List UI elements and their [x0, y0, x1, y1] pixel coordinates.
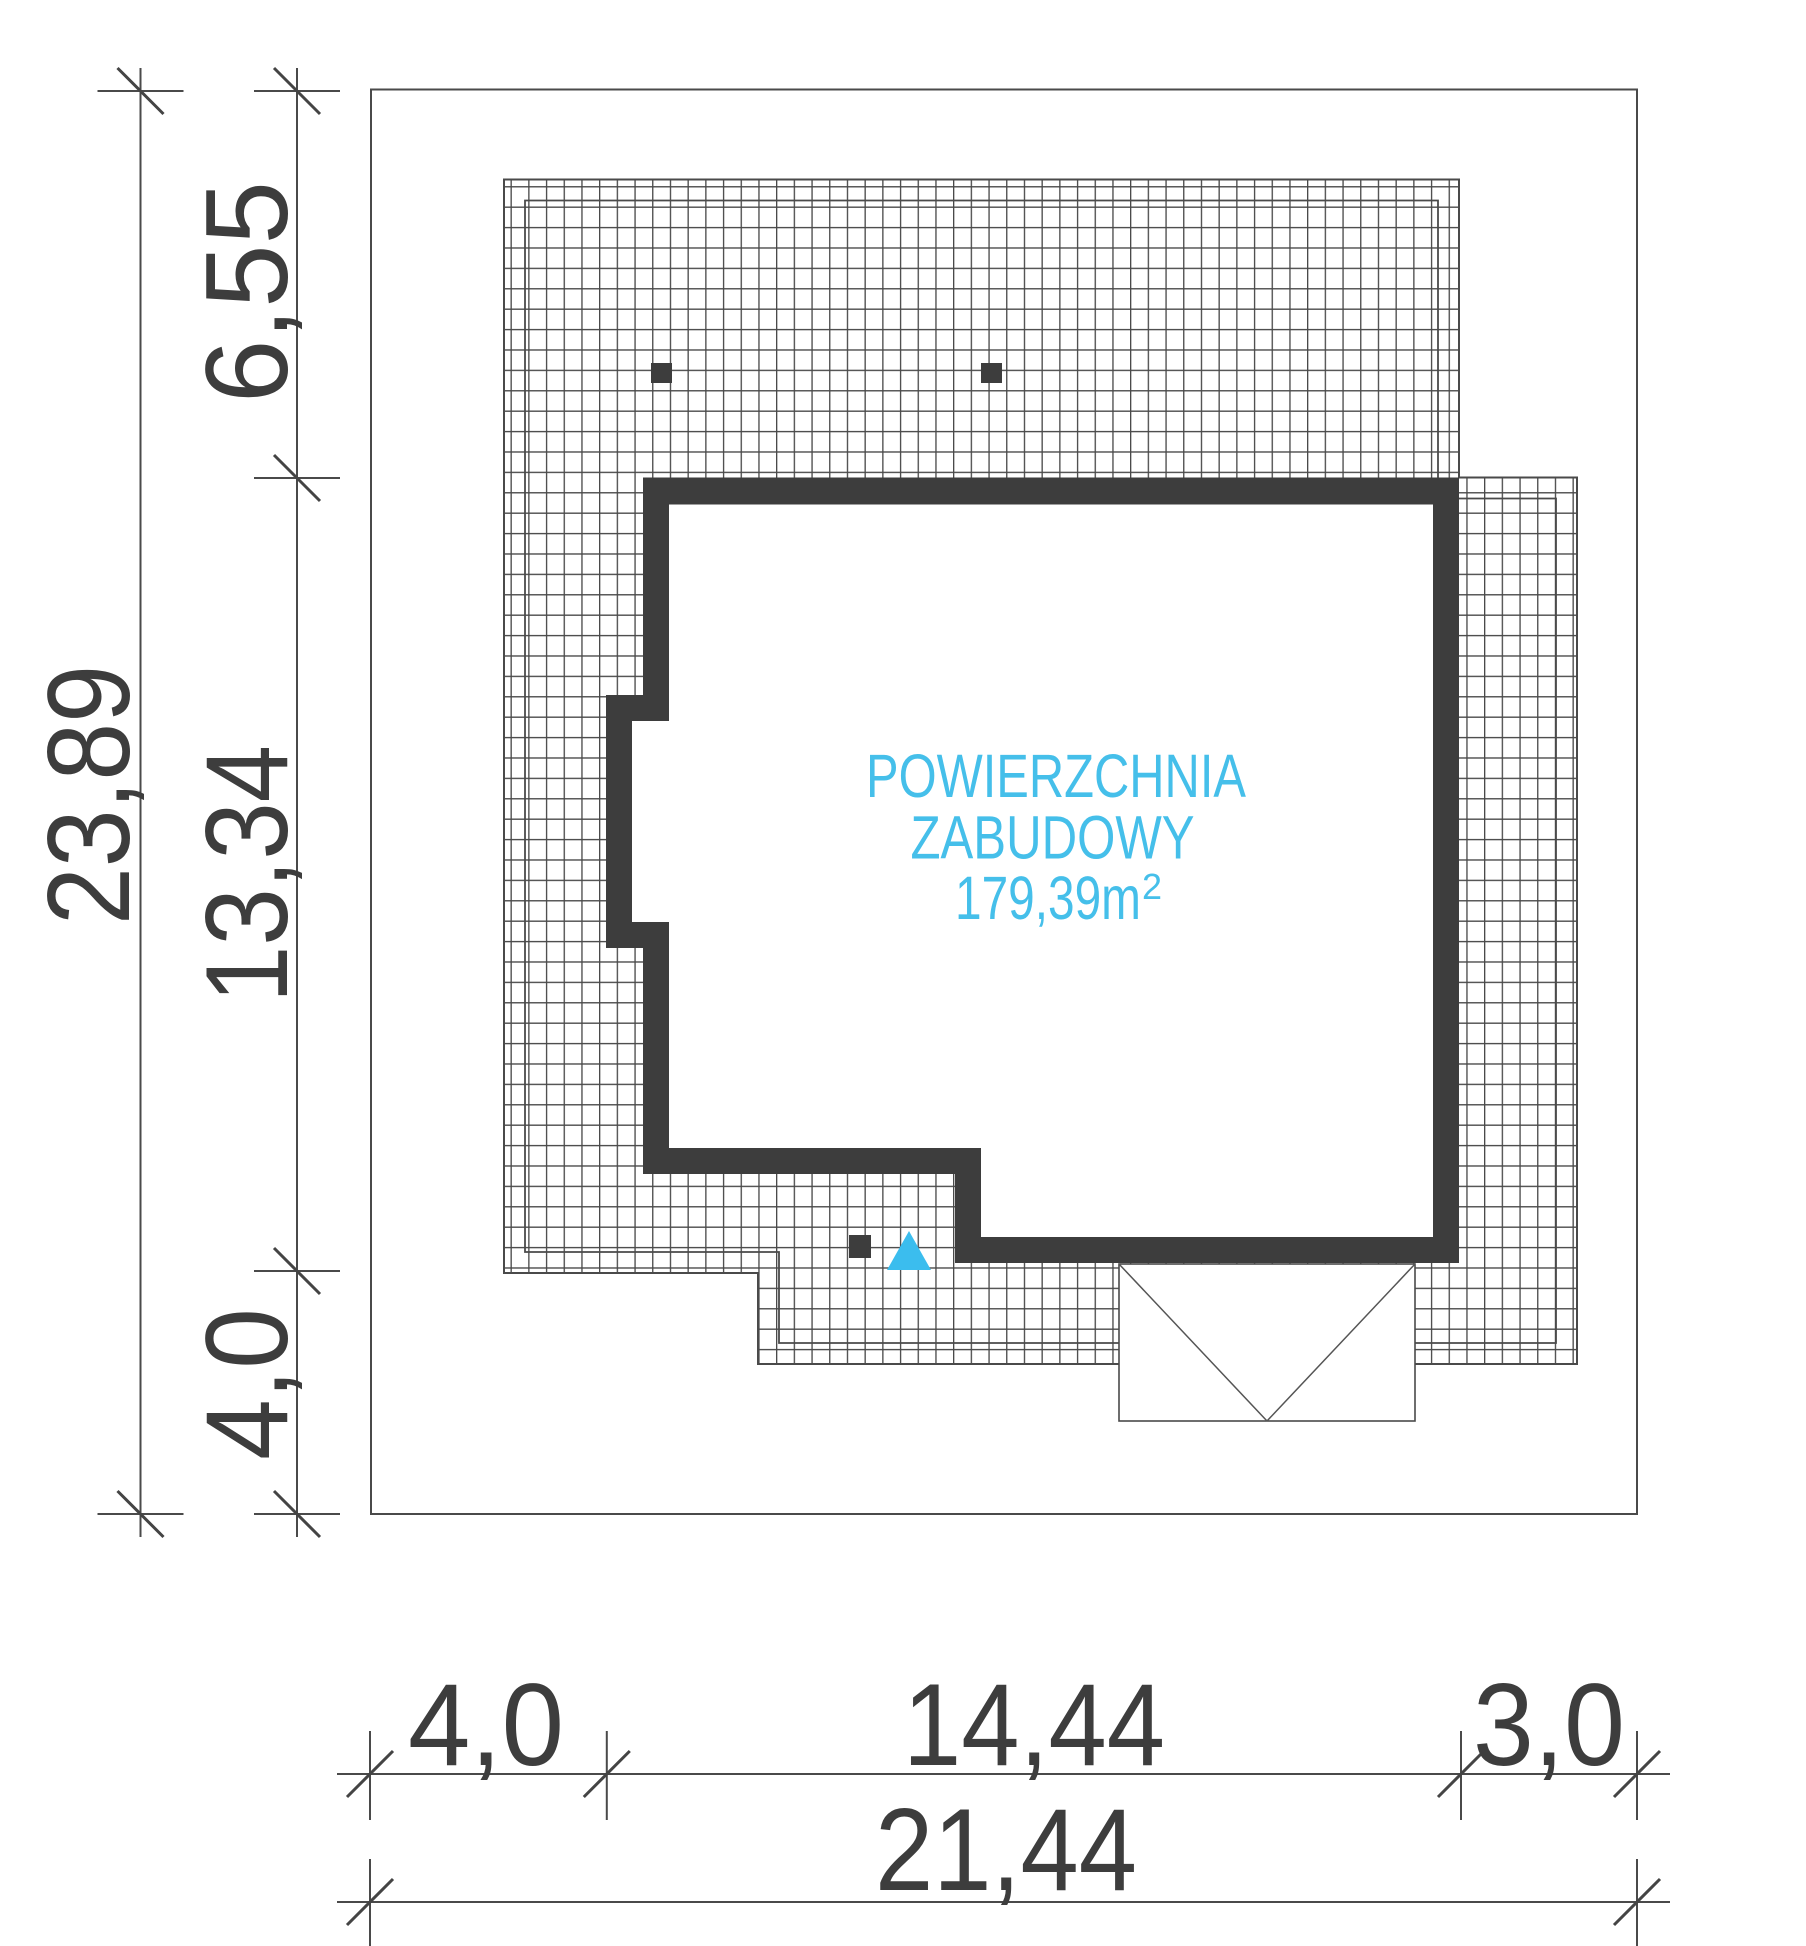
- svg-text:179,39m: 179,39m: [955, 864, 1141, 933]
- svg-text:6,55: 6,55: [181, 181, 312, 403]
- svg-text:POWIERZCHNIA: POWIERZCHNIA: [866, 742, 1246, 811]
- svg-text:13,34: 13,34: [181, 745, 312, 1003]
- svg-text:14,44: 14,44: [903, 1659, 1165, 1790]
- svg-text:4,0: 4,0: [408, 1659, 564, 1790]
- svg-text:21,44: 21,44: [875, 1784, 1137, 1915]
- svg-text:23,89: 23,89: [23, 665, 154, 925]
- svg-text:3,0: 3,0: [1473, 1659, 1625, 1790]
- svg-text:2: 2: [1142, 866, 1162, 907]
- svg-text:4,0: 4,0: [181, 1308, 312, 1460]
- svg-text:ZABUDOWY: ZABUDOWY: [911, 803, 1195, 872]
